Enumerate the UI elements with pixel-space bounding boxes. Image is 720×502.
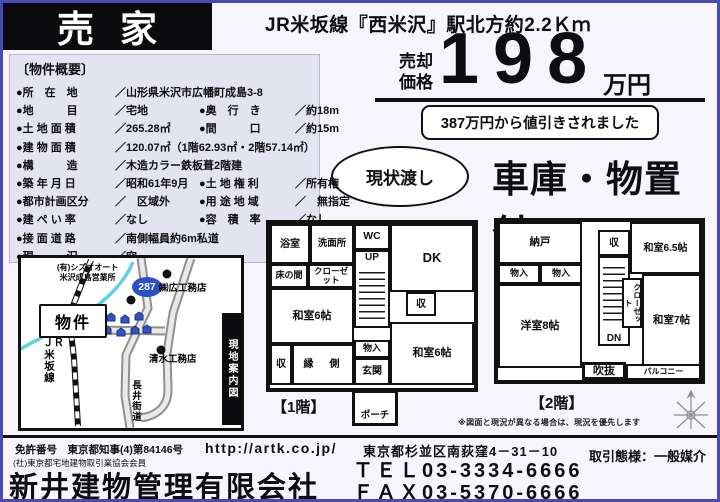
room-label: DN [605,333,623,344]
company-url: http://artk.co.jp/ [205,440,337,456]
map-label-line: 米沢成島営業所 [57,273,118,283]
transaction-type: 取引態様：一般媒介 [589,446,706,465]
room-storage-right: 収 [406,292,436,316]
map-caption-strip: 現地案内図 [222,313,241,425]
stairs-pattern [359,267,385,322]
room-label: 収 [609,238,619,249]
stairs-up: UP [354,250,390,328]
map-label-shizu-auto: (有)シズオオート 米沢成島営業所 [57,263,118,284]
price-underline [375,98,705,102]
room-storage-bottom: 収 [270,344,292,385]
overview-label: ●地 目 [16,102,115,118]
room-balcony: バルコニー [626,364,701,380]
map-label-nagai-road: 長井街道 [128,380,142,422]
overview-value: ／ 無指定 [295,193,350,209]
overview-value: ／120.07㎡（1階62.93㎡・2階57.14㎡） [115,139,315,155]
map-label-line: ＪＲ [43,338,64,349]
room-label: 物入 [363,344,381,354]
floorplan-disclaimer: ※図面と現況が異なる場合は、現況を優先します [458,417,640,428]
map-label-shimizu-builder: 清水工務店 [149,351,197,365]
overview-label: ●建 ぺ い 率 [16,211,115,227]
room-label: 物入 [510,269,528,279]
price-unit: 万円 [603,65,651,100]
room-tokonoma: 床の間 [270,264,308,288]
room-label: 和室7帖 [653,315,690,327]
floorplan-1f: 浴室 洗面所 WC UP DK 床の間 クローゼット 和室6帖 収 和室6帖 物… [266,220,482,436]
map-label-jr-line: ＪＲ 米坂線 [43,338,64,384]
room-label: DK [423,251,442,265]
room-label: 玄関 [362,366,382,377]
price-label: 売却 価格 [399,51,433,94]
room-storage-2: 物入 [540,264,582,284]
overview-label: ●間 口 [199,120,295,136]
overview-label: ●土 地 面 積 [16,120,115,136]
room-label: 縁 側 [304,359,343,370]
floorplan-2f-outline: 納戸 収 和室6.5帖 物入 物入 DN クローゼット 洋室8帖 和室7帖 吹抜… [494,218,705,384]
room-washroom: 洗面所 [310,224,354,264]
overview-row: ●土 地 面 積 ／265.28㎡ ●間 口 ／約15m [16,119,319,137]
room-label: 床の間 [275,271,302,281]
room-label: 洋室8帖 [520,320,559,332]
overview-row: ●地 目 ／宅地 ●奥 行 き ／約18m [16,101,319,119]
price-amount: 198 [439,23,601,95]
map-label-line: 米坂線 [43,349,54,384]
room-closet: クローゼット [308,264,354,288]
room-label: 収 [276,359,286,370]
overview-value: ／昭和61年9月 [115,175,199,191]
license-number: 免許番号 東京都知事(4)第84146号 [15,442,183,457]
overview-label: ●建 物 面 積 [16,139,115,155]
overview-value: ／約15m [295,120,339,136]
room-label: 物入 [552,269,570,279]
room-entrance: 玄関 [354,358,390,385]
map-label-hiro-builder: ㈱広工務店 [159,280,207,294]
room-label: UP [363,252,381,263]
room-label: 収 [416,299,426,310]
sale-banner: 売家 [2,2,212,50]
room-label: バルコニー [644,368,684,377]
room-label: 和室6.5帖 [644,243,688,254]
overview-row: ●築 年 月 日 ／昭和61年9月 ●土 地 権 利 ／所有権 [16,174,319,192]
company-name: 新井建物管理有限会社 [9,464,319,502]
overview-label: ●用 途 地 域 [199,193,295,209]
overview-value: ／なし [115,211,199,227]
room-engawa: 縁 側 [292,344,354,385]
condition-badge: 現状渡し [331,146,469,207]
overview-label: ●土 地 権 利 [199,175,295,191]
room-label: クローゼット [310,267,352,286]
room-yoshitsu-8: 洋室8帖 [498,284,582,368]
room-fukinuke: 吹抜 [582,362,626,380]
room-label: 浴室 [280,239,300,250]
room-storage-1: 物入 [498,264,540,284]
overview-row: ●構 造 ／木造カラー鉄板葺2階建 [16,156,319,174]
overview-row: ●建 物 面 積 ／120.07㎡（1階62.93㎡・2階57.14㎡） [16,138,319,156]
location-map: (有)シズオオート 米沢成島営業所 287 ㈱広工務店 清水工務店 長井街道 Ｊ… [18,255,244,431]
room-label: 和室6帖 [412,347,451,359]
overview-value: ／ 区域外 [115,193,199,209]
room-washitsu-6-left: 和室6帖 [270,288,354,344]
room-storage-mid: 物入 [354,340,390,358]
room-porch: ポーチ [352,390,398,426]
overview-value: ／265.28㎡ [115,120,199,136]
compass-icon [671,387,711,433]
overview-value: ／山形県米沢市広幡町成島3-8 [115,84,263,100]
room-dk: DK [390,224,474,292]
overview-title: 〔物件概要〕 [16,59,319,78]
room-washitsu-6-right: 和室6帖 [390,322,474,385]
flyer-page: 売家 JR米坂線『西米沢』駅北方約2.2Ｋｍ 売却 価格 198 万円 387万… [0,0,720,502]
room-closet-2f: クローゼット [622,278,642,328]
fax-number: ＦＡＸ03-5370-6666 [353,476,583,502]
price-label-bottom: 価格 [399,72,433,93]
property-callout: 物件 [39,304,107,338]
overview-label: ●構 造 [16,157,115,173]
room-wc: WC [354,224,390,250]
overview-value: ／宅地 [115,102,199,118]
overview-value: ／木造カラー鉄板葺2階建 [115,157,242,173]
overview-row: ●都市計画区分 ／ 区域外 ●用 途 地 域 ／ 無指定 [16,192,319,210]
railway-line [69,260,91,426]
overview-label: ●都市計画区分 [16,193,115,209]
room-label: WC [363,231,381,243]
floorplan-1f-caption: 【1階】 [272,396,325,417]
overview-value: ／南側幅員約6m私道 [115,230,219,246]
overview-value: ／約18m [295,102,339,118]
map-label-line: (有)シズオオート [57,263,118,273]
room-label: 納戸 [530,237,551,249]
room-label: 吹抜 [593,365,615,377]
footer-divider [3,435,718,438]
room-label: ポーチ [361,411,390,421]
price-label-top: 売却 [399,51,433,72]
room-storage: 収 [598,230,630,256]
overview-row: ●所 在 地 ／山形県米沢市広幡町成島3-8 [16,83,319,101]
route-287-badge: 287 [132,277,162,297]
room-label: クローゼット [623,280,641,326]
overview-label: ●築 年 月 日 [16,175,115,191]
overview-label: ●所 在 地 [16,84,115,100]
room-nando: 納戸 [498,222,582,264]
overview-value: ／所有権 [295,175,339,191]
room-label: 和室6帖 [292,310,331,322]
room-label: 洗面所 [318,239,347,249]
room-bath: 浴室 [270,224,310,264]
overview-label: ●奥 行 き [199,102,295,118]
room-washitsu-7: 和室7帖 [642,274,701,368]
discount-note-box: 387万円から値引きされました [421,105,659,140]
floorplan-2f-caption: 【2階】 [530,392,583,413]
floorplan-1f-outline: 浴室 洗面所 WC UP DK 床の間 クローゼット 和室6帖 収 和室6帖 物… [266,220,478,392]
overview-label: ●接 面 道 路 [16,230,115,246]
room-washitsu-65: 和室6.5帖 [630,222,701,274]
